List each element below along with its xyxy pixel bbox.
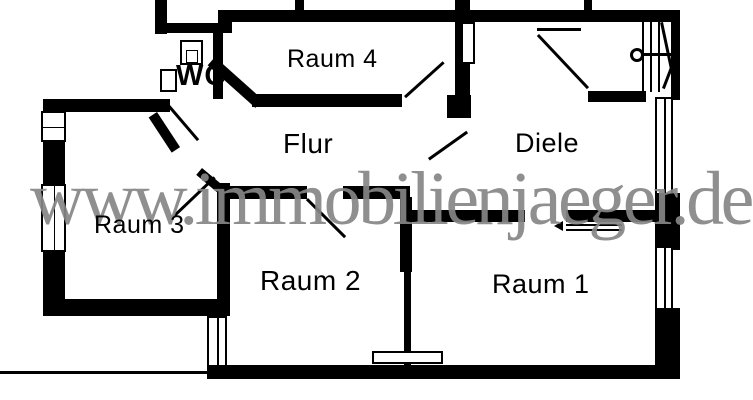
label-raum4: Raum 4 <box>287 45 378 74</box>
wall-right-mid <box>655 193 680 250</box>
label-diele: Diele <box>515 128 579 159</box>
door-swing-flur-diele-upper <box>404 61 444 98</box>
wall-raum4-diele-endblock <box>447 95 471 118</box>
stair-newel-post <box>630 48 644 62</box>
wall-divider-top <box>400 197 412 272</box>
radiator <box>372 351 443 364</box>
window-right-upper <box>655 97 673 195</box>
wall-wc-connector <box>218 10 232 33</box>
door-leaf-diele <box>461 22 475 64</box>
label-raum2: Raum 2 <box>260 265 361 297</box>
wall-diele-raum1-left <box>405 210 525 222</box>
door-leaf-raum1-b <box>566 229 622 231</box>
wall-raum3-jog <box>149 112 180 153</box>
wall-raum3-bottom <box>43 299 230 316</box>
terrace-line <box>0 371 208 374</box>
stair-tread-3 <box>658 22 660 92</box>
door-leaf-raum1-a <box>566 224 622 226</box>
wall-stair-bottom <box>588 91 646 102</box>
door-leaf-entrance <box>537 28 581 31</box>
wall-wc-top <box>163 23 218 33</box>
label-flur: Flur <box>283 128 333 160</box>
wall-raum3-right <box>217 183 230 316</box>
stair-tread-2 <box>650 22 652 92</box>
door-swing-flur-diele-lower <box>428 131 468 160</box>
label-raum3: Raum 3 <box>94 211 185 240</box>
window-right-lower <box>655 246 673 310</box>
wall-bottom <box>207 365 680 379</box>
label-wc: WC <box>176 60 226 93</box>
floor-plan: www.immobilienjaeger.de <box>0 0 753 400</box>
wall-diele-raum1-right <box>566 210 666 222</box>
window-left-lower <box>41 184 66 252</box>
wall-raum2-top-left <box>222 186 307 199</box>
wall-flur-top <box>252 94 402 107</box>
label-raum1: Raum 1 <box>492 269 590 300</box>
door-swing-raum2 <box>306 198 346 238</box>
window-left-upper <box>41 111 66 142</box>
stair-rail <box>640 53 678 56</box>
washbasin <box>160 69 177 92</box>
door-arrow-raum1 <box>554 221 563 231</box>
wall-top-stub-left <box>295 0 304 12</box>
wall-top-stub-right <box>584 0 592 12</box>
door-swing-entrance <box>537 34 589 89</box>
wall-top <box>225 10 678 22</box>
wall-right-bottom <box>655 308 680 368</box>
window-raum2-left <box>207 316 227 367</box>
